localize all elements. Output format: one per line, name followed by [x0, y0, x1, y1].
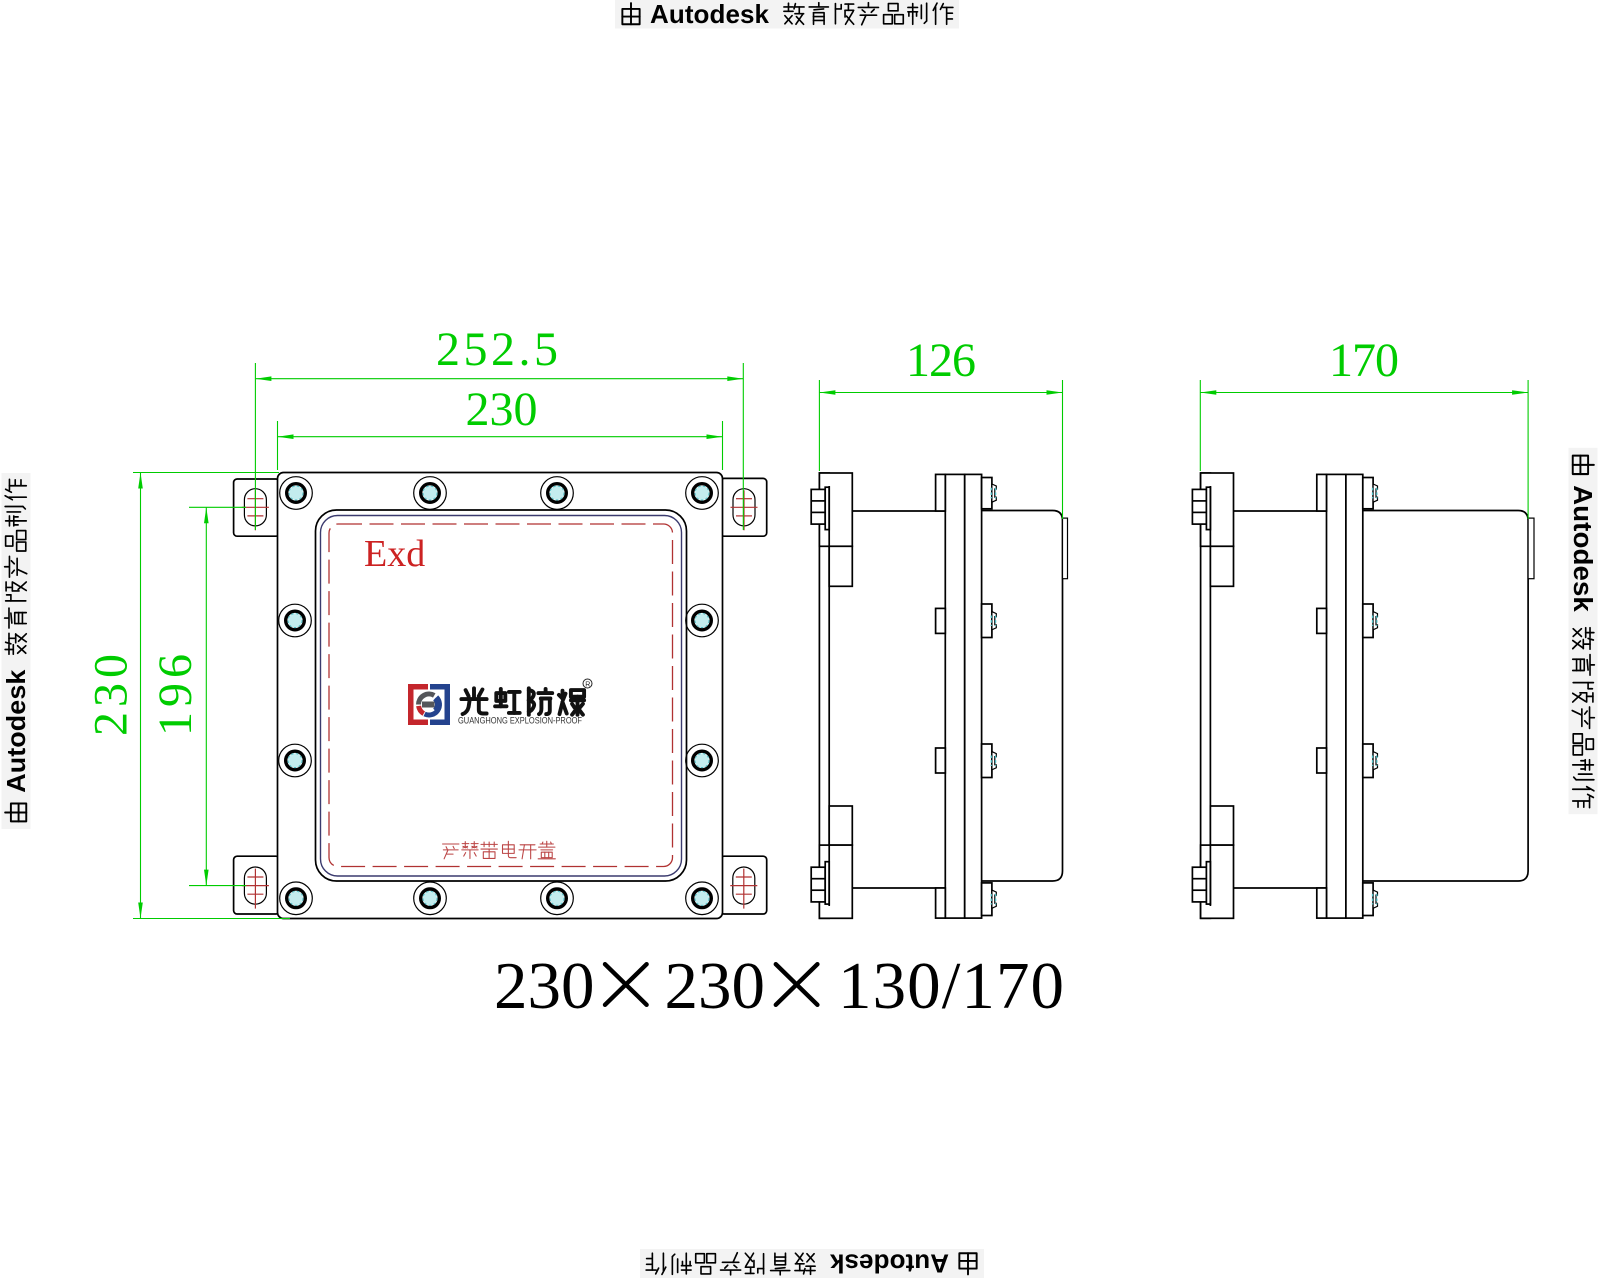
svg-text:Autodesk: Autodesk — [829, 1249, 949, 1279]
svg-text:230: 230 — [494, 949, 595, 1023]
svg-text:Autodesk: Autodesk — [1, 669, 30, 792]
svg-text:GUANGHONG EXPLOSION-PROOF: GUANGHONG EXPLOSION-PROOF — [458, 716, 583, 726]
svg-text:252.5: 252.5 — [436, 323, 558, 376]
svg-text:230: 230 — [466, 383, 538, 436]
svg-text:Autodesk: Autodesk — [650, 0, 770, 29]
svg-text:130/170: 130/170 — [838, 949, 1064, 1023]
svg-text:R: R — [585, 681, 590, 688]
svg-text:126: 126 — [906, 334, 976, 387]
svg-text:230: 230 — [665, 949, 766, 1023]
svg-text:Exd: Exd — [364, 533, 425, 575]
svg-text:170: 170 — [1329, 334, 1399, 387]
svg-text:Autodesk: Autodesk — [1568, 485, 1597, 612]
svg-text:196: 196 — [149, 654, 202, 736]
svg-text:230: 230 — [85, 654, 138, 736]
